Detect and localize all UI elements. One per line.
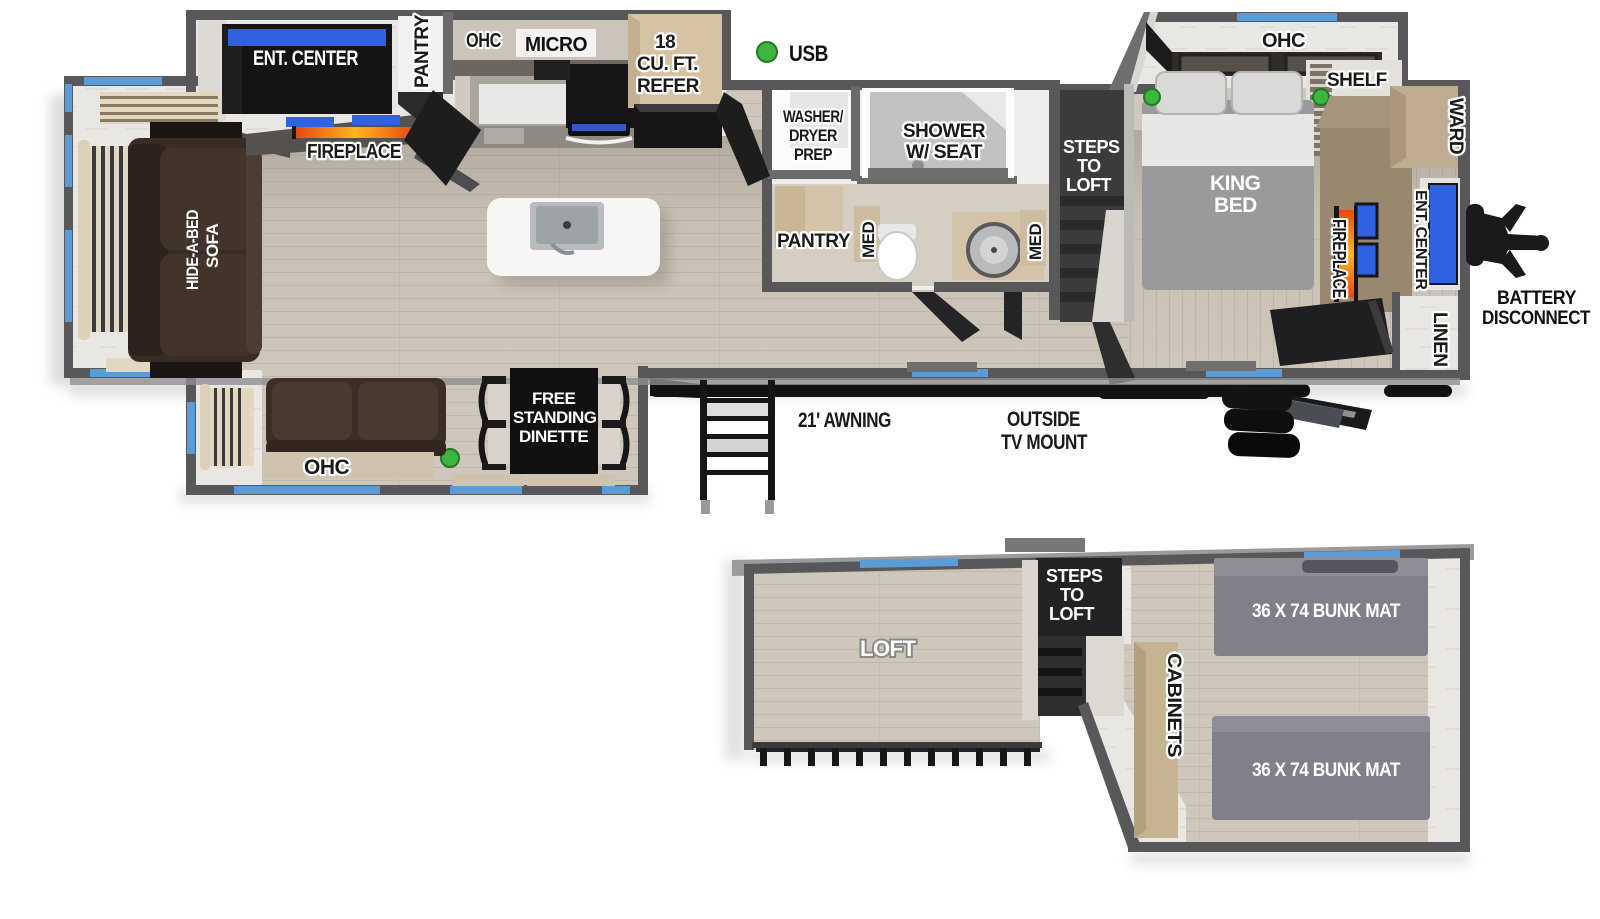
svg-text:FIREPLACE: FIREPLACE [307,141,401,163]
svg-text:PANTRY: PANTRY [412,14,433,88]
svg-text:OHC: OHC [1262,30,1305,52]
svg-text:KING: KING [1210,172,1261,195]
svg-text:WARD: WARD [1445,98,1466,154]
svg-text:WASHER/: WASHER/ [783,107,844,126]
svg-text:STEPS: STEPS [1046,566,1103,586]
svg-text:CABINETS: CABINETS [1163,653,1184,757]
svg-text:LOFT: LOFT [1066,175,1111,195]
svg-text:PREP: PREP [794,145,832,164]
svg-text:ENT. CENTER: ENT. CENTER [253,47,358,70]
svg-text:SOFA: SOFA [203,223,222,268]
svg-text:FREE: FREE [532,389,576,408]
svg-text:LOFT: LOFT [860,636,916,661]
svg-text:SHOWER: SHOWER [903,121,986,142]
svg-text:OUTSIDE: OUTSIDE [1007,408,1080,431]
svg-text:USB: USB [789,41,828,66]
svg-text:OHC: OHC [304,456,350,479]
svg-text:BATTERY: BATTERY [1497,288,1577,309]
svg-text:MICRO: MICRO [525,34,587,56]
svg-text:36 X 74 BUNK MAT: 36 X 74 BUNK MAT [1252,760,1401,781]
svg-text:FIREPLACE: FIREPLACE [1329,219,1349,298]
svg-text:REFER: REFER [637,76,700,97]
svg-text:W/ SEAT: W/ SEAT [906,142,983,163]
svg-text:21' AWNING: 21' AWNING [798,409,891,432]
svg-text:DRYER: DRYER [789,126,837,145]
svg-text:TV MOUNT: TV MOUNT [1001,431,1088,454]
svg-text:BED: BED [1214,194,1257,217]
svg-text:CU. FT.: CU. FT. [637,54,698,75]
svg-text:PANTRY: PANTRY [777,231,851,252]
svg-text:STANDING: STANDING [513,408,597,427]
svg-text:SHELF: SHELF [1327,70,1387,91]
svg-text:TO: TO [1077,156,1101,176]
svg-text:DINETTE: DINETTE [519,427,588,446]
svg-text:TO: TO [1060,585,1084,605]
svg-text:18: 18 [655,32,675,53]
svg-text:MED: MED [859,222,878,259]
svg-text:STEPS: STEPS [1063,137,1120,157]
svg-text:LOFT: LOFT [1049,604,1094,624]
svg-text:DISCONNECT: DISCONNECT [1482,308,1591,329]
svg-text:36 X 74 BUNK MAT: 36 X 74 BUNK MAT [1252,601,1401,622]
svg-text:ENT. CENTER: ENT. CENTER [1412,190,1429,290]
svg-text:MED: MED [1026,224,1045,261]
svg-text:OHC: OHC [466,30,501,52]
svg-text:HIDE-A-BED: HIDE-A-BED [183,210,202,290]
svg-text:LINEN: LINEN [1429,312,1450,367]
